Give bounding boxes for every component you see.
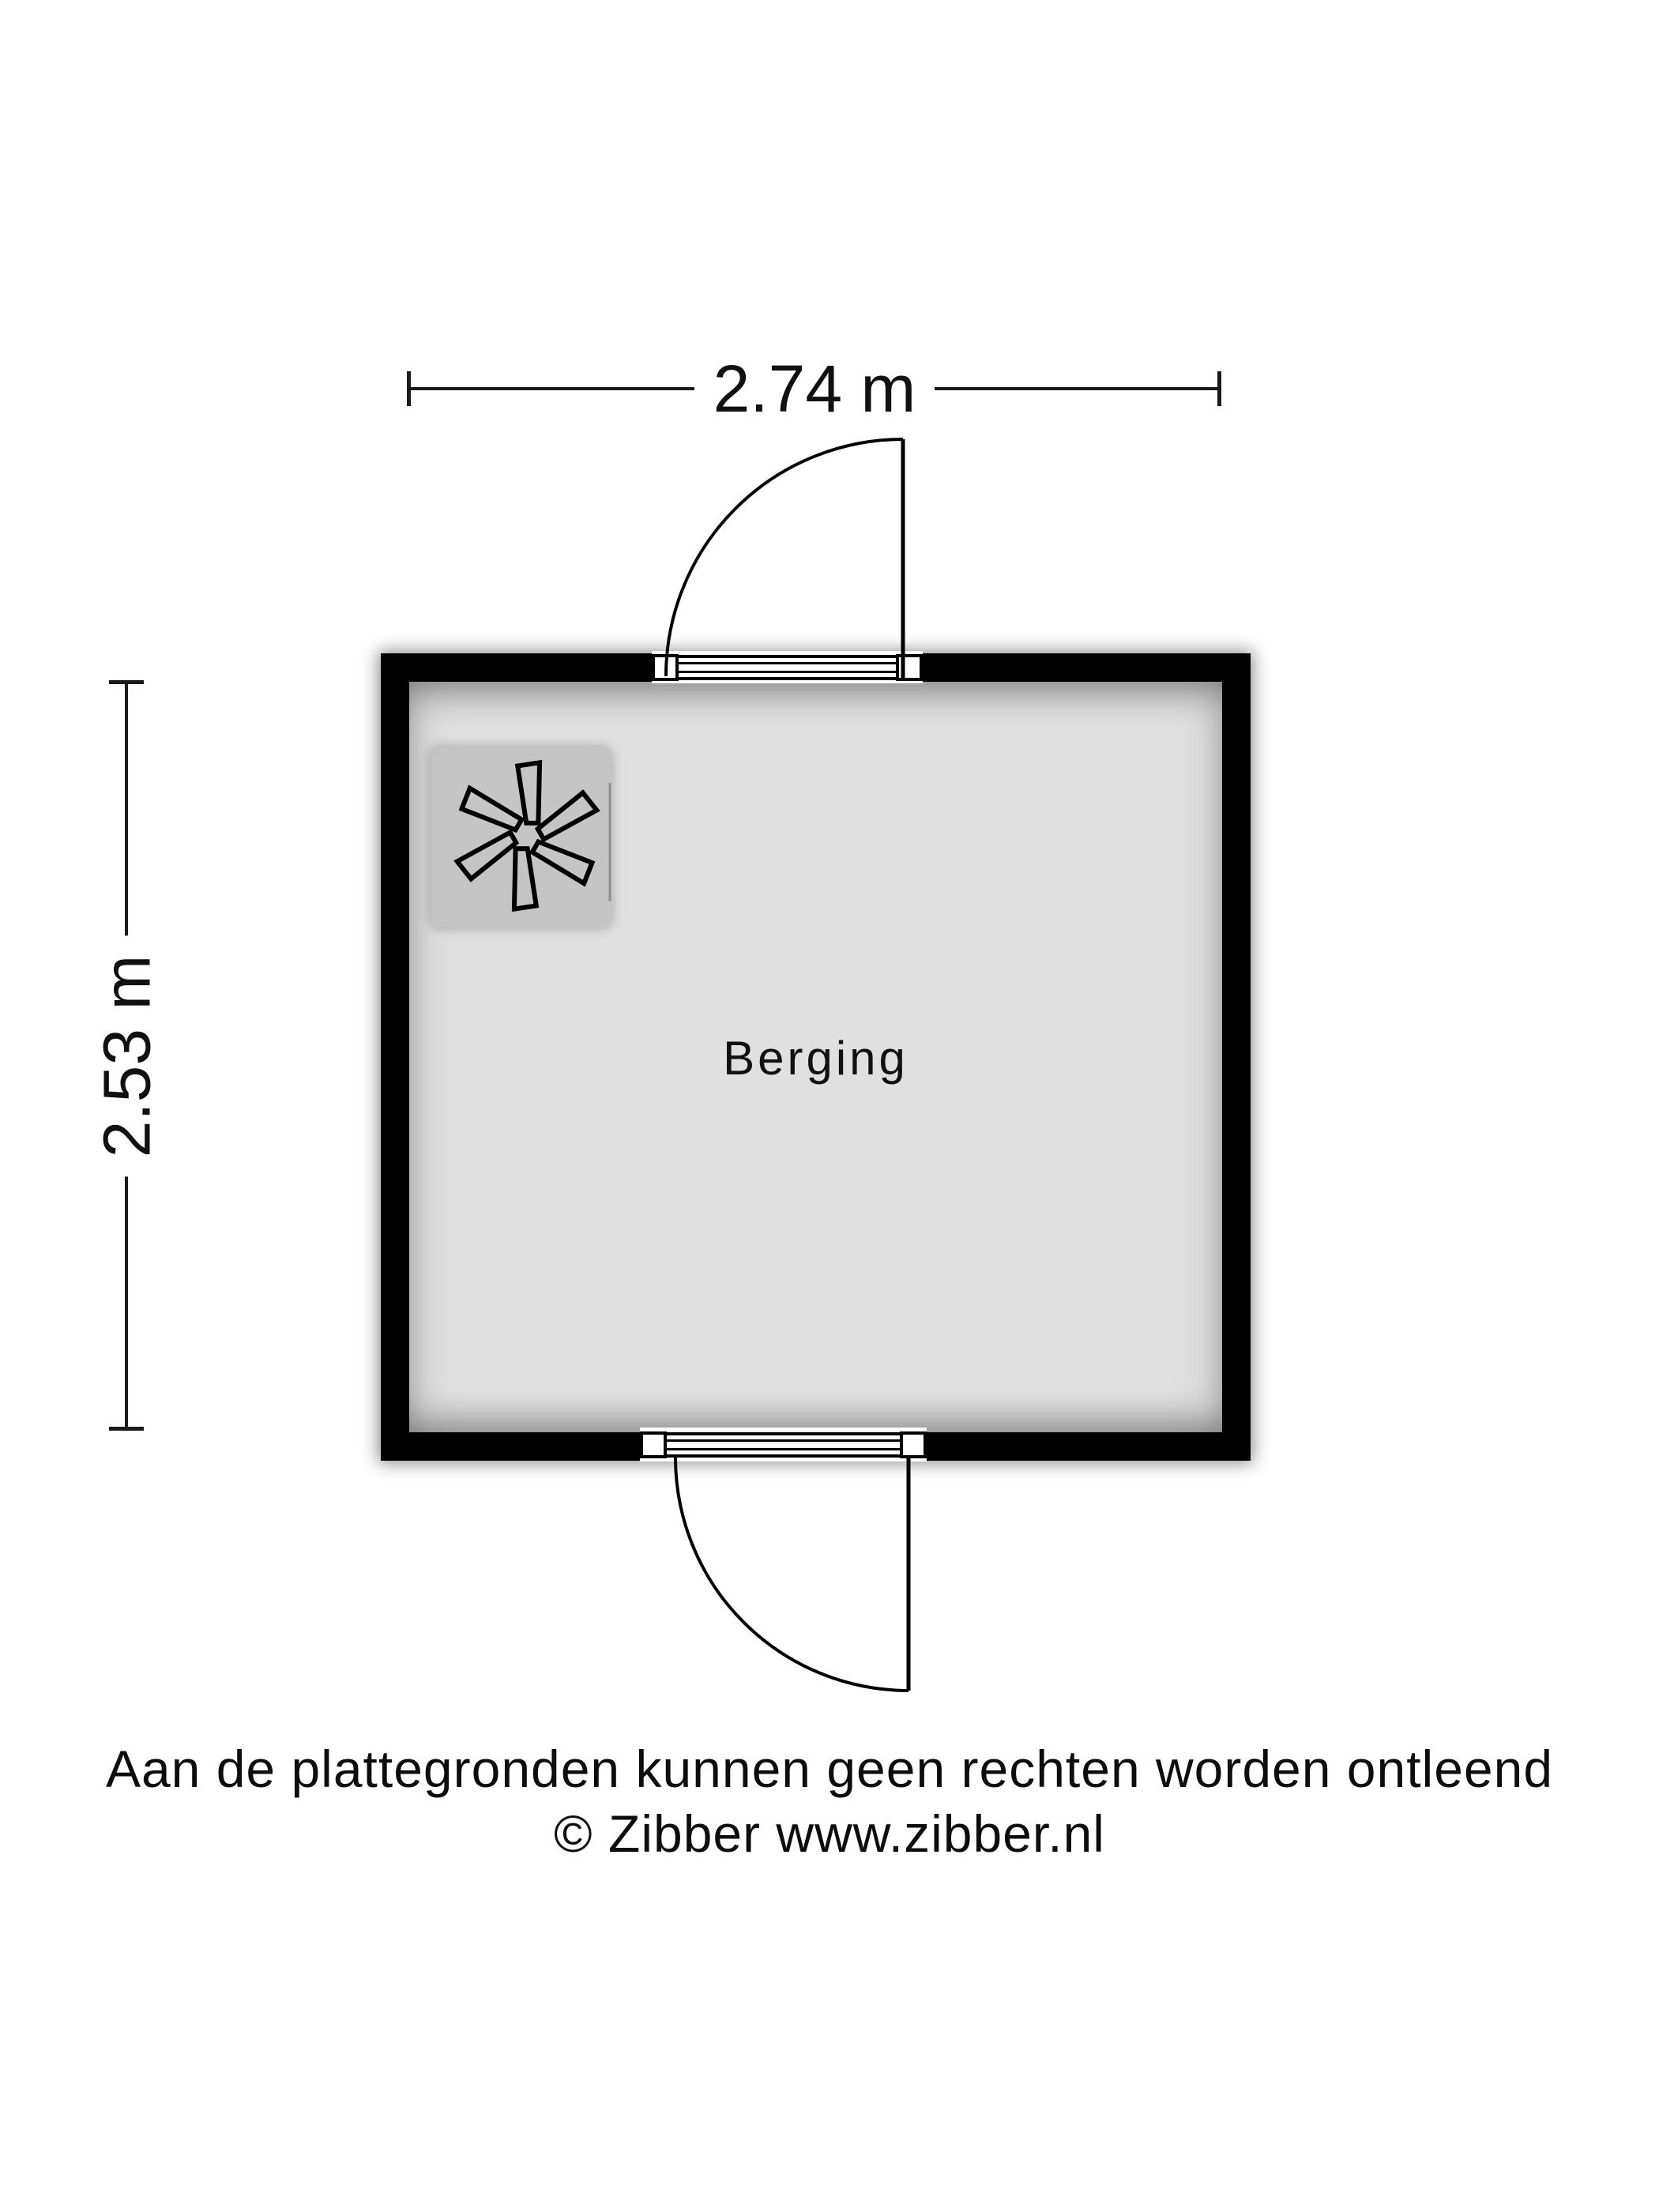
- floorplan: 2.74 m 2.53 m: [0, 0, 1659, 2212]
- door-jamb: [900, 1431, 927, 1458]
- dimension-height-text: 2.53 m: [90, 935, 163, 1176]
- footer-copyright: © Zibber www.zibber.nl: [0, 1801, 1659, 1866]
- room-label: Berging: [409, 1029, 1222, 1089]
- door-jamb: [652, 654, 679, 681]
- door-swing-arc-top: [666, 439, 903, 676]
- dimension-label-height: 2.53 m: [87, 682, 166, 1430]
- dimension-width-text: 2.74 m: [694, 352, 935, 426]
- footer: Aan de plattegronden kunnen geen rechten…: [0, 1736, 1659, 1866]
- dimension-label-width: 2.74 m: [408, 352, 1221, 425]
- footer-disclaimer: Aan de plattegronden kunnen geen rechten…: [0, 1736, 1659, 1801]
- fan-icon: [431, 747, 611, 927]
- door-opening-top: [652, 651, 923, 683]
- threshold-line: [679, 662, 896, 664]
- threshold-line: [679, 671, 896, 673]
- threshold-line: [667, 1439, 900, 1442]
- door-opening-bottom: [640, 1428, 927, 1461]
- threshold-line: [667, 1448, 900, 1450]
- door-threshold: [679, 655, 896, 680]
- door-jamb: [640, 1431, 667, 1458]
- door-jamb: [896, 654, 923, 681]
- door-swing-arc-bottom: [675, 1458, 908, 1691]
- ventilation-unit: [431, 747, 611, 927]
- door-threshold: [667, 1432, 900, 1458]
